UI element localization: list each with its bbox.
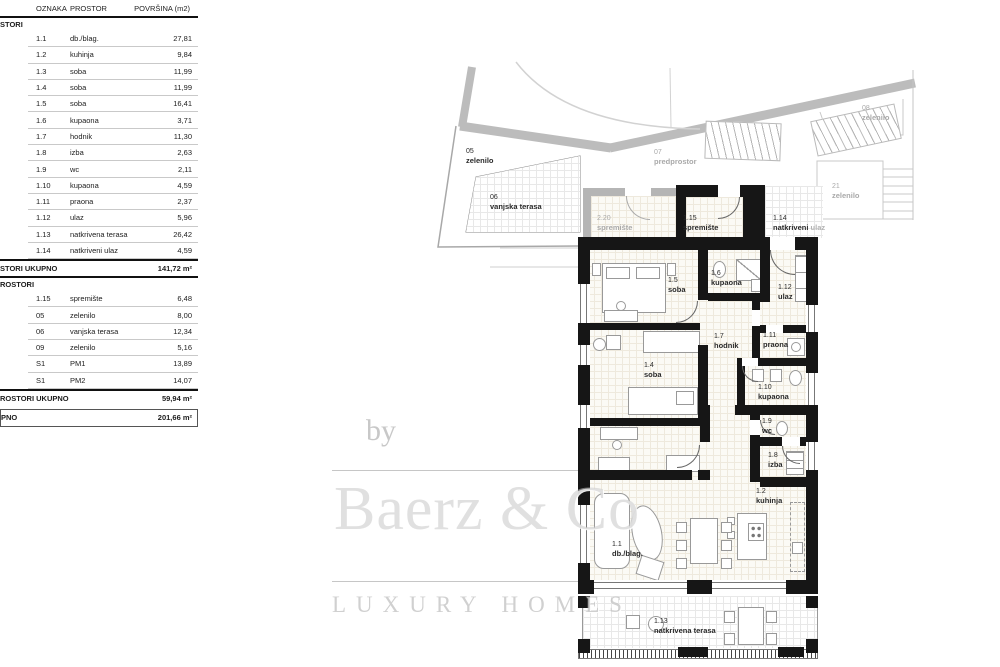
terrace-chair — [766, 633, 777, 645]
wall — [806, 245, 818, 594]
label-kupaona-110: 1.10 kupaona — [758, 383, 789, 401]
table-row: 1.4soba11,99 — [28, 80, 198, 96]
label-predprostor-07: 07 predprostor — [654, 148, 697, 166]
window — [578, 345, 590, 365]
dining-chair — [676, 540, 687, 551]
window — [806, 305, 818, 332]
table-row: 06vanjska terasa12,34 — [28, 324, 198, 340]
sliding-door — [594, 580, 687, 594]
furniture-chair — [612, 440, 622, 450]
col-povrsina: POVRŠINA (m2) — [134, 4, 190, 13]
label-izba-18: 1.8 izba — [768, 451, 783, 469]
dining-chair — [721, 522, 732, 533]
page: OZNAKA PROSTOR POVRŠINA (m2) STORI 1.1db… — [0, 0, 1000, 667]
dining-chair — [721, 558, 732, 569]
section2-total: ROSTORI UKUPNO 59,94 m² — [0, 389, 198, 406]
furniture-desk — [600, 427, 638, 440]
section1-rows: 1.1db./blag.27,811.2kuhinja9,841.3soba11… — [28, 31, 198, 259]
door-gap — [718, 185, 740, 197]
terrace-side-table — [626, 615, 640, 629]
post — [678, 647, 708, 657]
table-row: 1.14natkriveni ulaz4,59 — [28, 243, 198, 259]
door-gap — [752, 310, 760, 326]
sliding-door — [712, 580, 786, 594]
floor-plan: 05 zelenilo 06 vanjska terasa 07 predpro… — [430, 55, 1000, 667]
dining-table — [690, 518, 718, 564]
fixture-sink — [792, 542, 803, 554]
furniture-chair — [616, 301, 626, 311]
label-natkriveni-ulaz-114: 1.14 natkriveni ulaz — [773, 214, 825, 232]
furniture-sofa — [643, 331, 700, 353]
table-row: S1PM214,07 — [28, 373, 198, 389]
wall — [583, 188, 591, 238]
dining-chair — [676, 522, 687, 533]
furniture-pillow — [676, 391, 694, 405]
label-kupaona-16: 1.6 kupaona — [711, 269, 742, 287]
appliance-hob — [748, 523, 764, 541]
post — [578, 596, 590, 608]
door-gap — [750, 420, 760, 435]
label-zelenilo-21: 21 zelenilo — [832, 182, 860, 200]
terrace-chair — [766, 611, 777, 623]
wall — [580, 470, 692, 480]
window — [578, 284, 590, 323]
table-row: 1.1db./blag.27,81 — [28, 31, 198, 47]
label-spremiste-220: 2.20 spremište — [597, 214, 632, 232]
furniture-dresser — [598, 457, 630, 471]
watermark-by: by — [366, 414, 396, 448]
section2-title: ROSTORI — [0, 276, 198, 291]
furniture-nightstand — [592, 263, 601, 276]
label-spremiste-115: 1.15 spremište — [683, 214, 718, 232]
label-vanjska-terasa-06: 06 vanjska terasa — [490, 193, 542, 211]
table-row: 1.6kupaona3,71 — [28, 112, 198, 128]
area-table: OZNAKA PROSTOR POVRŠINA (m2) STORI 1.1db… — [0, 0, 198, 427]
grand-value: 201,66 m² — [158, 413, 197, 422]
door-gap — [625, 188, 651, 196]
label-dbblag-11: 1.1 db./blag. — [612, 540, 643, 558]
table-row: 1.2kuhinja9,84 — [28, 47, 198, 63]
label-ulaz-112: 1.12 ulaz — [778, 283, 793, 301]
furniture-armchair — [606, 335, 621, 350]
terrace-chair — [724, 611, 735, 623]
label-praona-111: 1.11 praona — [763, 331, 788, 349]
label-wc-19: 1.9 wc — [762, 417, 772, 435]
table-row: 1.15spremište6,48 — [28, 291, 198, 307]
wall — [698, 250, 708, 300]
stairs — [704, 121, 781, 162]
dining-chair — [721, 540, 732, 551]
grand-total: PNO 201,66 m² — [0, 409, 198, 427]
table-row: S1PM113,89 — [28, 356, 198, 372]
fixture-toilet — [776, 421, 788, 436]
table-row: 1.5soba16,41 — [28, 96, 198, 112]
label-hodnik-17: 1.7 hodnik — [714, 332, 739, 350]
col-prostor: PROSTOR — [70, 4, 107, 13]
door-gap — [782, 437, 800, 446]
wall — [743, 185, 765, 237]
table-row: 1.11praona2,37 — [28, 194, 198, 210]
furniture-pillow — [636, 267, 660, 279]
section1-title: STORI — [0, 16, 198, 31]
grand-label: PNO — [1, 413, 158, 422]
table-row: 1.12ulaz5,96 — [28, 210, 198, 226]
section2-rows: 1.15spremište6,4805zelenilo8,0006vanjska… — [28, 291, 198, 389]
total-label: ROSTORI UKUPNO — [0, 394, 162, 403]
table-row: 1.3soba11,99 — [28, 64, 198, 80]
table-row: 1.7hodnik11,30 — [28, 129, 198, 145]
window — [806, 373, 818, 405]
table-row: 1.13natkrivena terasa26,42 — [28, 227, 198, 243]
furniture-pillow — [606, 267, 630, 279]
window — [578, 405, 590, 428]
terrace-table — [738, 607, 764, 645]
total-value: 141,72 m² — [158, 264, 198, 273]
total-value: 59,94 m² — [162, 394, 198, 403]
wall — [760, 477, 818, 487]
appliance-washer-drum — [791, 342, 801, 352]
post — [578, 639, 590, 653]
furniture-desk — [604, 310, 638, 322]
total-label: STORI UKUPNO — [0, 264, 158, 273]
terrace-chair — [724, 633, 735, 645]
label-zelenilo-08: 08 zelenilo — [862, 104, 890, 122]
furniture-table — [593, 338, 606, 351]
label-natkrivena-terasa-113: 1.13 natkrivena terasa — [654, 617, 716, 635]
post — [806, 596, 818, 608]
wall — [698, 470, 710, 480]
post — [778, 647, 804, 657]
wall — [583, 323, 700, 330]
col-oznaka: OZNAKA — [36, 4, 67, 13]
entry-gap — [770, 237, 795, 250]
label-soba-14: 1.4 soba — [644, 361, 662, 379]
wall — [760, 250, 770, 302]
table-row: 05zelenilo8,00 — [28, 307, 198, 323]
table-row: 1.9wc2,11 — [28, 161, 198, 177]
wall — [700, 405, 710, 442]
table-header: OZNAKA PROSTOR POVRŠINA (m2) — [0, 0, 198, 16]
window — [578, 505, 590, 563]
post — [806, 639, 818, 653]
dining-chair — [676, 558, 687, 569]
kitchen-counter — [790, 502, 805, 572]
fixture-sink — [770, 369, 782, 382]
window — [806, 442, 818, 470]
label-soba-15: 1.5 soba — [668, 276, 686, 294]
wall — [735, 405, 818, 415]
door-gap — [742, 358, 758, 366]
section1-total: STORI UKUPNO 141,72 m² — [0, 259, 198, 276]
table-row: 1.10kupaona4,59 — [28, 178, 198, 194]
fixture-toilet — [789, 370, 802, 386]
label-zelenilo-05: 05 zelenilo — [466, 147, 494, 165]
furniture-nightstand — [667, 263, 676, 276]
label-kuhinja-12: 1.2 kuhinja — [756, 487, 782, 505]
wall — [583, 418, 700, 426]
table-row: 1.8izba2,63 — [28, 145, 198, 161]
table-row: 09zelenilo5,16 — [28, 340, 198, 356]
